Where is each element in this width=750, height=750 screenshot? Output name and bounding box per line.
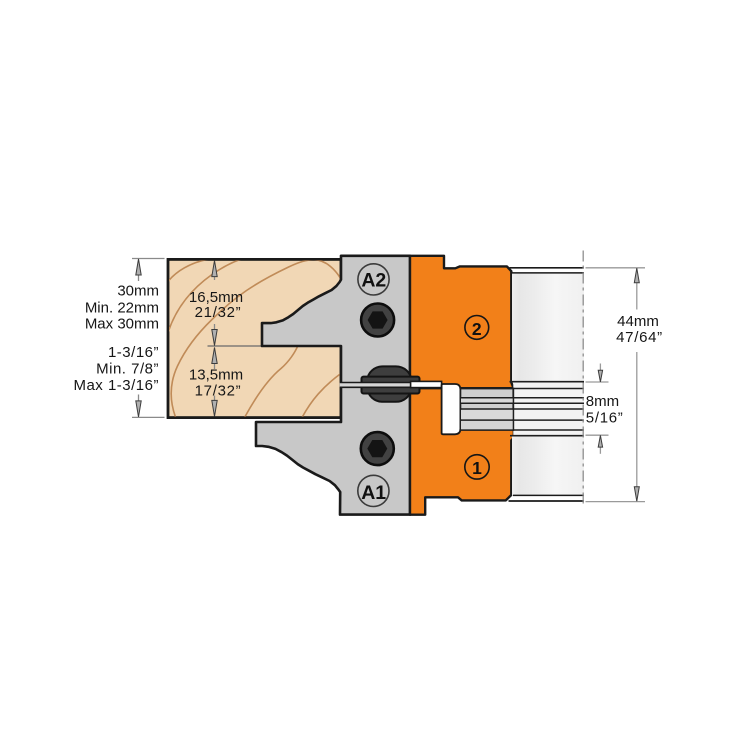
svg-text:30mm: 30mm [117, 283, 159, 300]
svg-text:21/32”: 21/32” [195, 304, 242, 321]
svg-text:A1: A1 [361, 482, 386, 504]
svg-text:Min. 22mm: Min. 22mm [85, 299, 159, 316]
svg-text:2: 2 [472, 319, 482, 339]
svg-text:8mm: 8mm [586, 393, 619, 410]
svg-text:Max 1-3/16”: Max 1-3/16” [73, 377, 159, 394]
svg-text:Min. 7/8”: Min. 7/8” [96, 361, 159, 378]
svg-text:47/64”: 47/64” [616, 329, 663, 346]
svg-text:Max 30mm: Max 30mm [85, 315, 159, 332]
svg-text:17/32”: 17/32” [195, 382, 242, 399]
svg-text:5/16”: 5/16” [586, 410, 624, 427]
svg-text:1-3/16”: 1-3/16” [108, 344, 159, 361]
svg-text:1: 1 [472, 458, 482, 478]
svg-text:44mm: 44mm [617, 313, 659, 330]
svg-text:A2: A2 [361, 270, 386, 292]
svg-text:13,5mm: 13,5mm [189, 367, 243, 384]
